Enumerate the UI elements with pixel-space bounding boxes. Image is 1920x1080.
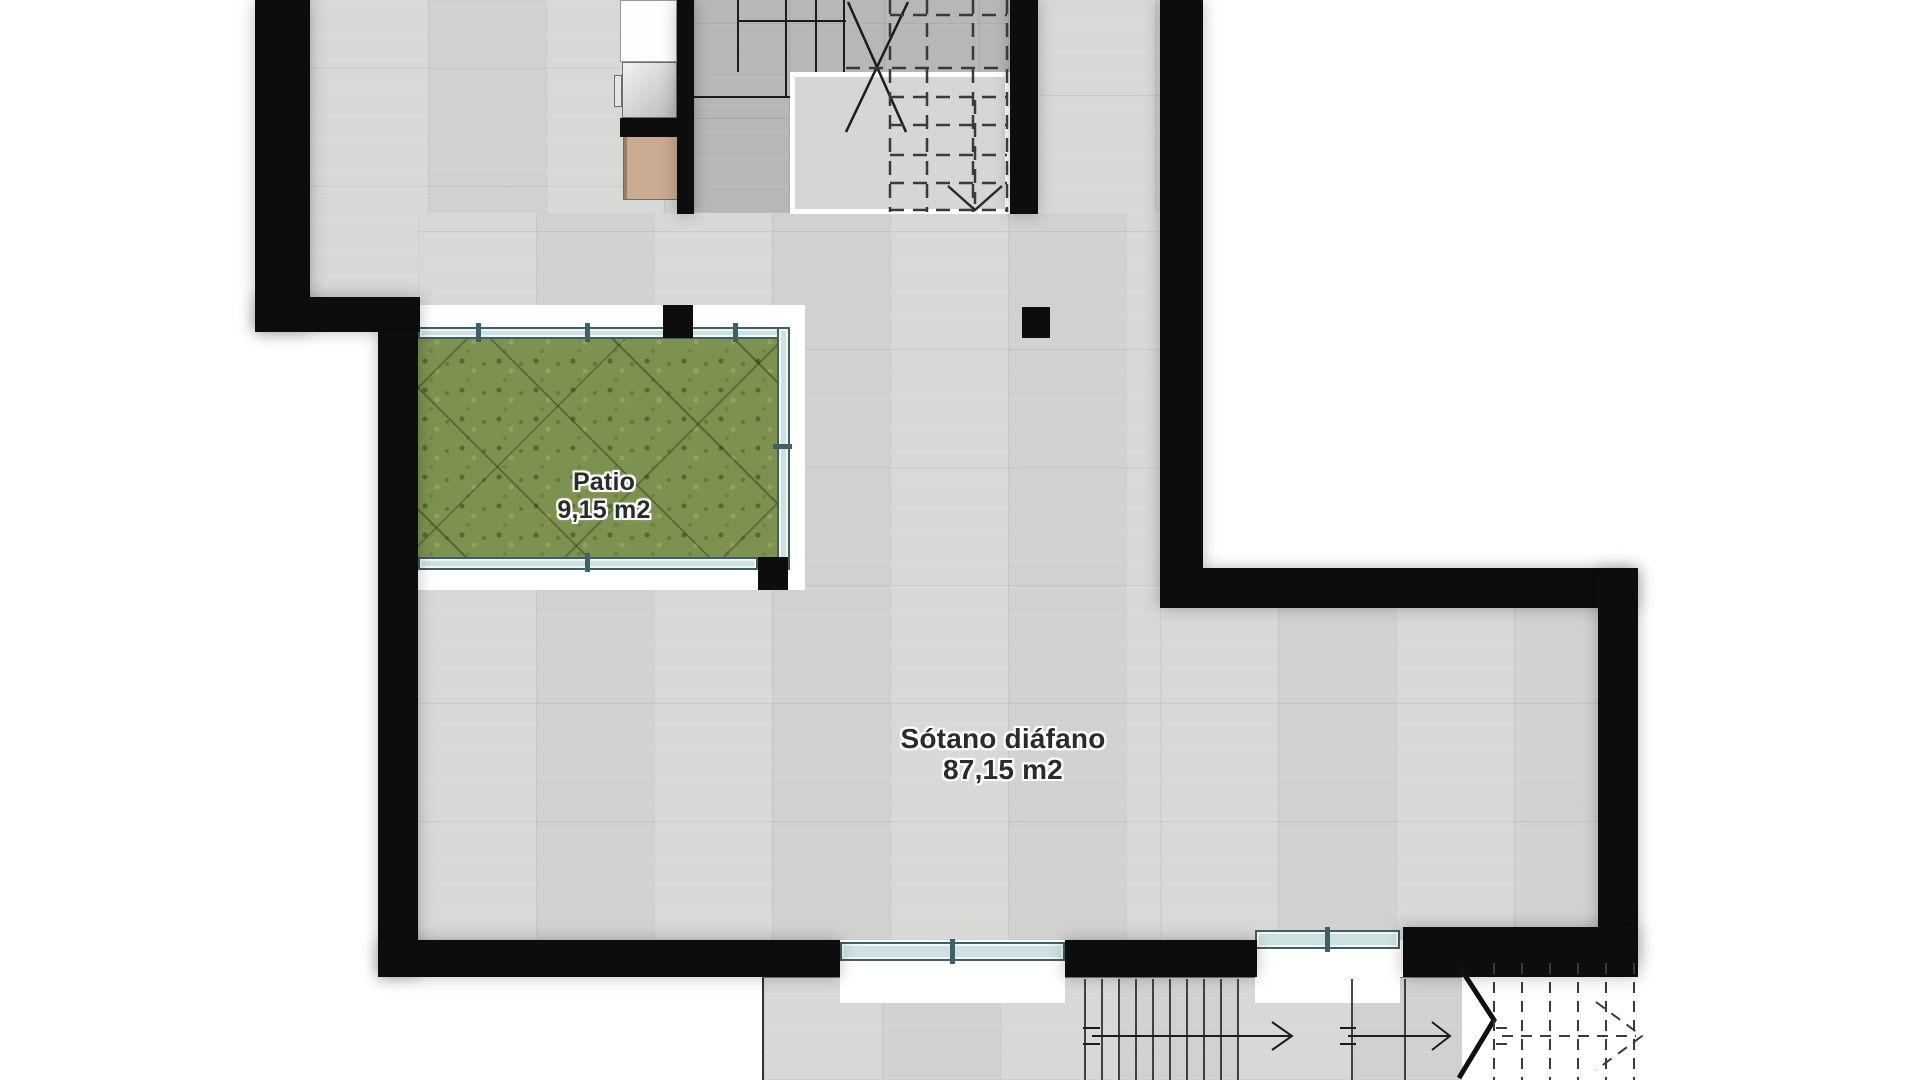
wall-stair-right	[1010, 0, 1038, 214]
patio-area: 9,15 m2	[454, 496, 754, 524]
railing-mullion	[585, 553, 590, 572]
wall-bottom-right	[1403, 927, 1638, 977]
appliance-dryer	[623, 135, 678, 200]
patio-void-right	[790, 305, 805, 590]
basement-name: Sótano diáfano	[900, 723, 1105, 754]
structural-column	[1022, 307, 1050, 338]
patio-slope-lines	[418, 327, 790, 570]
railing-mullion	[585, 323, 590, 342]
window-void-right	[1255, 948, 1400, 1003]
patio-label: Patio 9,15 m2	[454, 468, 754, 524]
wall-laundry-right	[677, 0, 694, 214]
laundry-counter	[620, 0, 677, 62]
railing-mullion	[476, 323, 481, 342]
railing-mullion	[950, 939, 955, 964]
wall-right-exterior	[1598, 568, 1638, 963]
corridor-floor	[1037, 0, 1160, 214]
patio-name: Patio	[573, 468, 635, 496]
wall-bottom-left	[378, 940, 840, 977]
stair-landing	[790, 72, 1010, 214]
basement-right-floor	[1160, 608, 1598, 940]
appliance-washer-handle	[614, 75, 622, 107]
wall-bottom-middle	[1065, 940, 1257, 977]
railing-mullion	[1325, 927, 1330, 952]
wall-appliance-divider	[620, 118, 694, 137]
wall-left-lower	[378, 330, 418, 977]
wall-patio-stub-top	[663, 305, 693, 338]
door-swing-icon	[1459, 966, 1494, 1078]
basement-area: 87,15 m2	[853, 754, 1153, 785]
outdoor-steps-dashed	[1494, 963, 1642, 1080]
floor-plan-canvas: Patio 9,15 m2 Sótano diáfano 87,15 m2	[0, 0, 1920, 1080]
patio-grass	[418, 327, 790, 570]
wall-patio-stub-bottom	[758, 557, 788, 590]
appliance-washer	[622, 62, 677, 118]
patio-void-bottom	[418, 570, 790, 590]
wall-left-top	[255, 0, 310, 332]
railing-mullion	[733, 323, 738, 342]
wall-right-upper	[1160, 0, 1203, 572]
railing-mullion	[773, 444, 792, 449]
wall-right-step	[1160, 568, 1638, 608]
wall-left-step	[255, 297, 420, 332]
basement-label: Sótano diáfano 87,15 m2	[853, 723, 1153, 786]
window-void-left	[840, 960, 1065, 1003]
